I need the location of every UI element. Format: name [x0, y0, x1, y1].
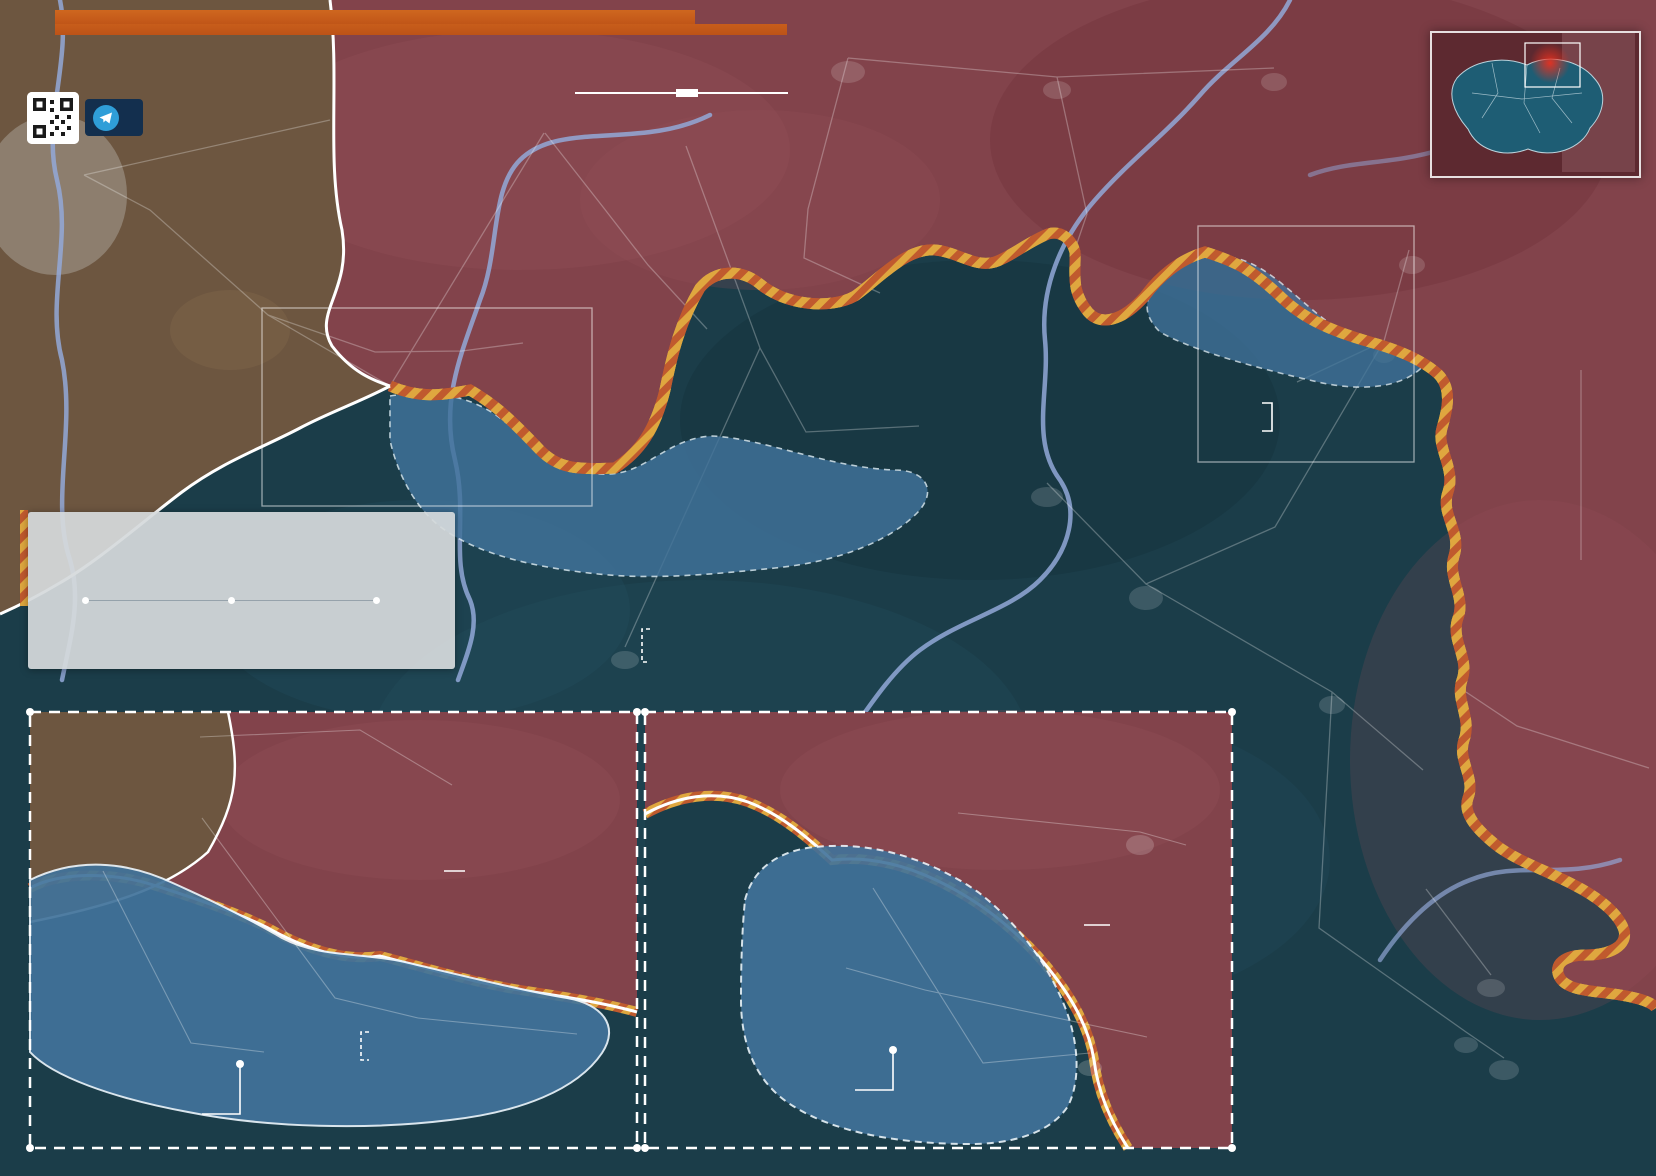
qr-code	[27, 92, 79, 144]
map-title	[55, 10, 695, 24]
qr-pattern	[27, 92, 79, 144]
title-banner	[55, 10, 787, 35]
legend-divider	[86, 600, 376, 601]
situation-map	[0, 0, 1656, 1176]
overview-minimap	[1430, 31, 1641, 178]
telegram-badge[interactable]	[85, 99, 143, 136]
map-subtitle	[55, 24, 787, 35]
map-legend	[28, 512, 455, 669]
telegram-icon	[93, 105, 119, 131]
